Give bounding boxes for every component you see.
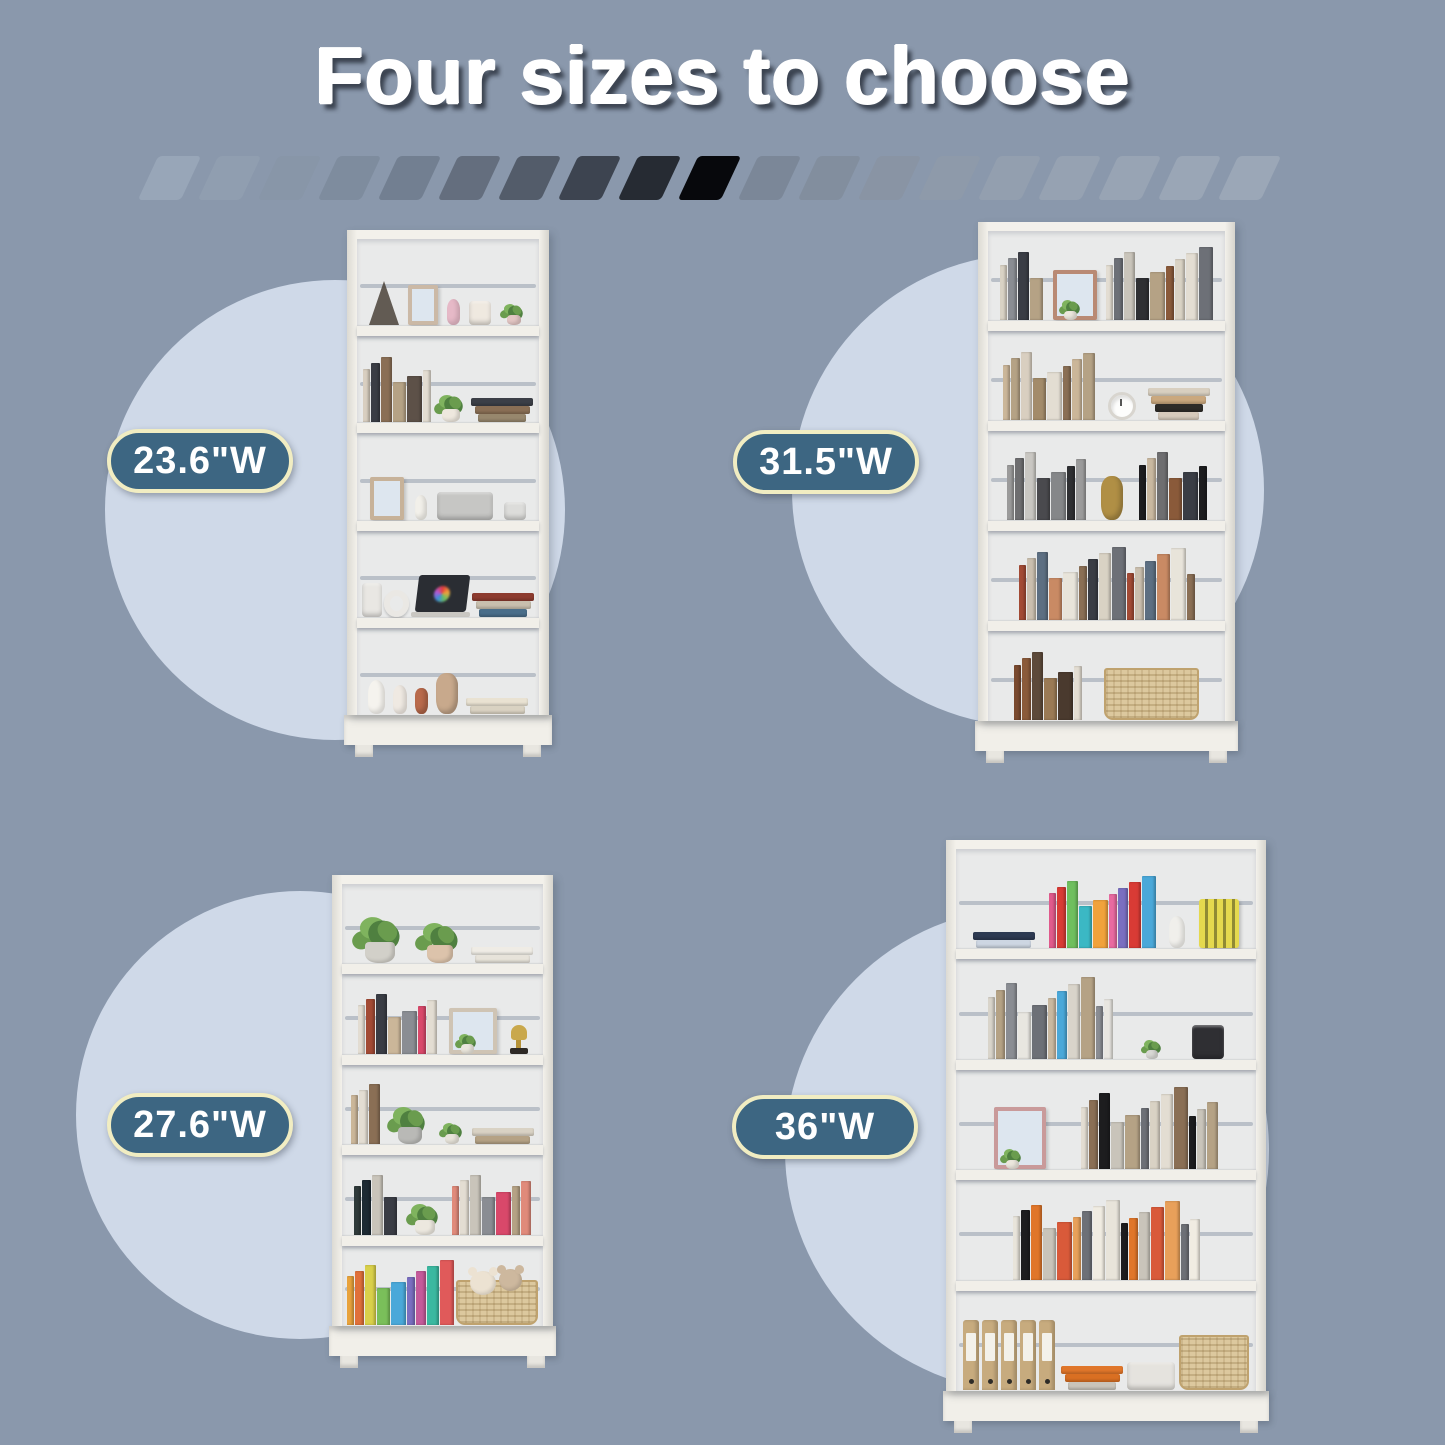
shelf-item-dv [437, 492, 493, 520]
size-badge: 36"W [732, 1095, 918, 1159]
shelf-item-bk [1081, 1087, 1218, 1169]
shelf-item-fr [408, 285, 438, 326]
bookcase-photo-27-6 [332, 875, 553, 1368]
shelf-item-bs [1104, 668, 1199, 720]
slash-mark [1158, 156, 1222, 200]
shelf-item-bk [358, 994, 437, 1054]
shelf-item-bk [1007, 452, 1086, 520]
shelf-item-bk [1139, 452, 1207, 520]
shelf-item-fg [447, 299, 460, 325]
shelf-item-fl [1148, 388, 1210, 420]
shelf-item-ck [1108, 392, 1136, 420]
shelf-item-fg [415, 495, 427, 519]
shelf-compartment [988, 231, 1225, 321]
shelf-item-fp [449, 1008, 497, 1054]
slash-mark [318, 156, 382, 200]
slash-mark [978, 156, 1042, 200]
shelf-item-tr [510, 1025, 528, 1054]
shelf-item-bk [1014, 652, 1082, 720]
slash-mark [1218, 156, 1282, 200]
slash-mark [678, 156, 742, 200]
shelf-item-bk [988, 977, 1113, 1059]
shelf-compartment [342, 1155, 543, 1235]
shelf-compartment [357, 336, 539, 423]
shelf-item-fp [1053, 270, 1097, 320]
shelf-item-vs [415, 688, 428, 714]
bookcase-photo-31-5 [978, 222, 1235, 763]
slash-mark [738, 156, 802, 200]
slash-mark [378, 156, 442, 200]
shelf-item-fl [973, 932, 1035, 948]
shelf-item-bs [1179, 1335, 1249, 1390]
slash-mark [618, 156, 682, 200]
shelf-item-bk [347, 1260, 454, 1325]
shelf-item-bk [452, 1175, 531, 1235]
shelf-item-fl [471, 398, 533, 422]
shelf-item-fg [368, 680, 385, 714]
shelf-compartment [956, 1291, 1256, 1391]
page-title: Four sizes to choose [0, 34, 1445, 118]
slash-mark [438, 156, 502, 200]
shelf-item-bk [1019, 547, 1195, 620]
shelf-item-pl [352, 889, 409, 963]
shelf-compartment [956, 959, 1256, 1059]
shelf-compartment [357, 239, 539, 326]
shelf-compartment [342, 884, 543, 964]
shelf-item-fr [370, 477, 404, 519]
shelf-compartment [988, 431, 1225, 521]
slash-mark [498, 156, 562, 200]
shelf-item-pl [415, 898, 464, 963]
shelf-compartment [342, 974, 543, 1054]
size-label: 36"W [775, 1106, 875, 1149]
size-badge: 31.5"W [733, 430, 919, 494]
size-label: 23.6"W [133, 440, 267, 483]
shelf-item-pl [439, 1109, 466, 1144]
shelf-compartment [357, 433, 539, 520]
shelf-item-yb [1199, 899, 1239, 948]
shelf-item-bn [963, 1320, 1057, 1390]
shelf-item-bs [456, 1280, 538, 1325]
shelf-item-pl [387, 1084, 433, 1144]
slash-mark [1038, 156, 1102, 200]
shelf-compartment [357, 531, 539, 618]
shelf-item-dv [1192, 1025, 1224, 1059]
shelf-compartment [988, 631, 1225, 721]
slash-mark [858, 156, 922, 200]
bookcase-photo-23-6 [347, 230, 549, 757]
slash-mark [798, 156, 862, 200]
shelf-item-pl [434, 377, 468, 422]
shelf-item-pl [406, 1185, 444, 1235]
shelf-item-fl [472, 1128, 534, 1144]
size-label: 31.5"W [759, 441, 893, 484]
size-badge: 23.6"W [107, 429, 293, 493]
shelf-item-fl [1061, 1366, 1123, 1390]
shelf-item-dv [469, 301, 491, 325]
slash-mark [138, 156, 202, 200]
shelf-item-fg [393, 685, 408, 714]
shelf-item-fl [472, 593, 534, 617]
shelf-item-vs [436, 673, 458, 714]
shelf-compartment [956, 1180, 1256, 1280]
shelf-item-bk [1013, 1200, 1200, 1279]
bookcase-photo-36 [946, 840, 1266, 1433]
shelf-compartment [956, 1070, 1256, 1170]
shelf-item-fg [1169, 916, 1185, 948]
shelf-item-vs [1101, 476, 1123, 520]
shelf-compartment [342, 1246, 543, 1326]
shelf-item-fl [466, 698, 528, 714]
size-label: 27.6"W [133, 1104, 267, 1147]
shelf-item-fl [471, 947, 533, 963]
shelf-item-bk [363, 357, 431, 422]
shelf-item-bk [1049, 876, 1156, 949]
shelf-compartment [342, 1065, 543, 1145]
slash-mark [918, 156, 982, 200]
shelf-item-dv [504, 502, 526, 520]
shelf-compartment [988, 331, 1225, 421]
shelf-compartment [988, 531, 1225, 621]
shelf-item-dv [362, 583, 382, 617]
shelf-item-bk [351, 1084, 380, 1144]
shelf-item-bk [1106, 247, 1213, 320]
shelf-item-hp [384, 590, 409, 617]
shelf-item-fp [994, 1107, 1046, 1169]
slash-mark [558, 156, 622, 200]
slash-mark [258, 156, 322, 200]
shelf-item-bk [354, 1175, 397, 1235]
shelf-compartment [956, 849, 1256, 949]
shelf-item-bk [1003, 352, 1095, 420]
shelf-item-lp [411, 575, 470, 617]
shelf-item-tw [369, 281, 399, 325]
size-badge: 27.6"W [107, 1093, 293, 1157]
divider-slashes [148, 156, 1271, 200]
shelf-item-pl [500, 290, 527, 325]
shelf-item-bk [1000, 252, 1043, 320]
shelf-compartment [357, 628, 539, 715]
shelf-item-dv [1127, 1362, 1175, 1390]
shelf-item-pl [1141, 1029, 1164, 1059]
slash-mark [198, 156, 262, 200]
product-size-infographic: Four sizes to choose 23.6"W 31.5"W 27.6"… [0, 0, 1445, 1445]
slash-mark [1098, 156, 1162, 200]
